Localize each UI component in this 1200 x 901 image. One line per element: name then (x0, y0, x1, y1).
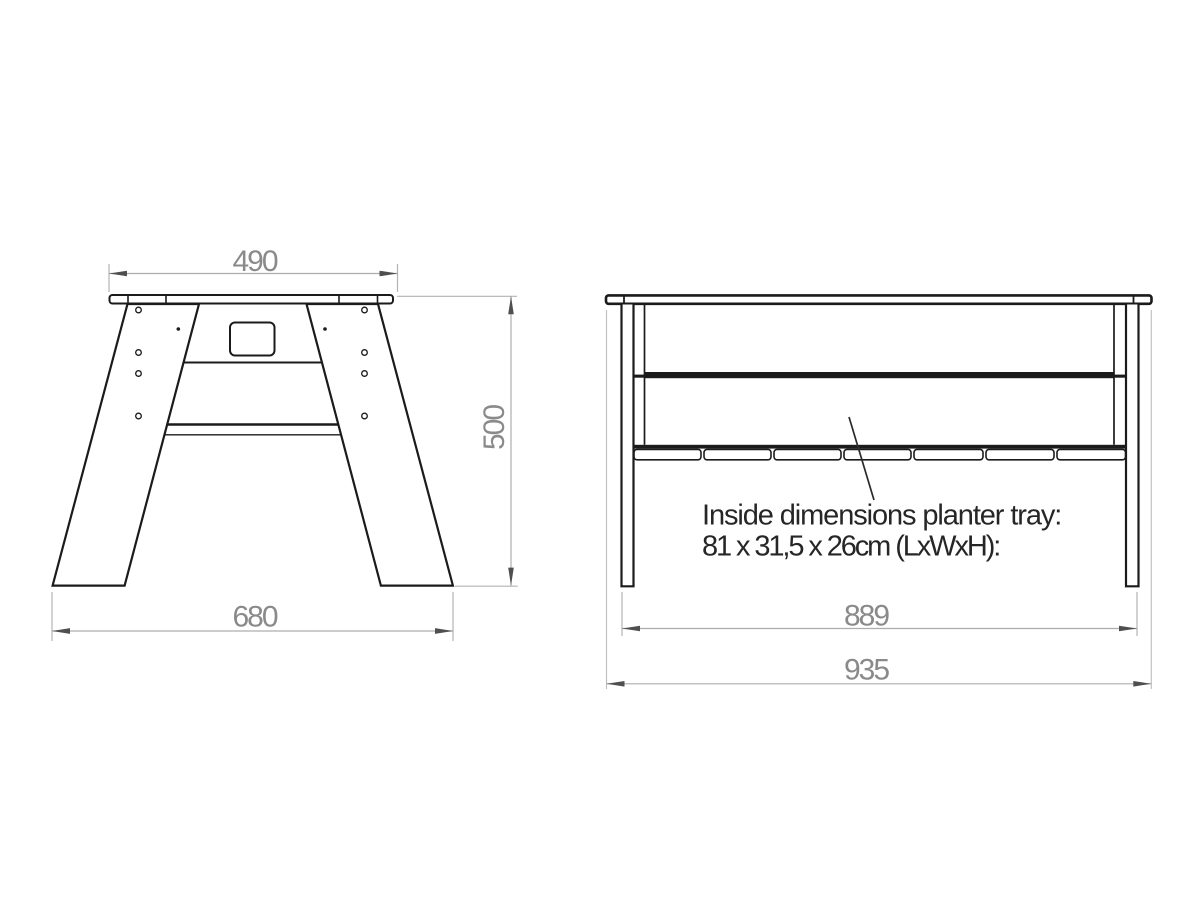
svg-text:Inside dimensions planter tray: Inside dimensions planter tray: (702, 500, 1061, 532)
svg-text:81 x 31,5 x 26cm (LxWxH):: 81 x 31,5 x 26cm (LxWxH): (702, 531, 999, 563)
svg-text:490: 490 (232, 245, 277, 278)
svg-text:500: 500 (478, 405, 511, 450)
svg-text:680: 680 (232, 601, 277, 634)
svg-text:935: 935 (844, 654, 889, 687)
svg-text:889: 889 (844, 600, 889, 633)
